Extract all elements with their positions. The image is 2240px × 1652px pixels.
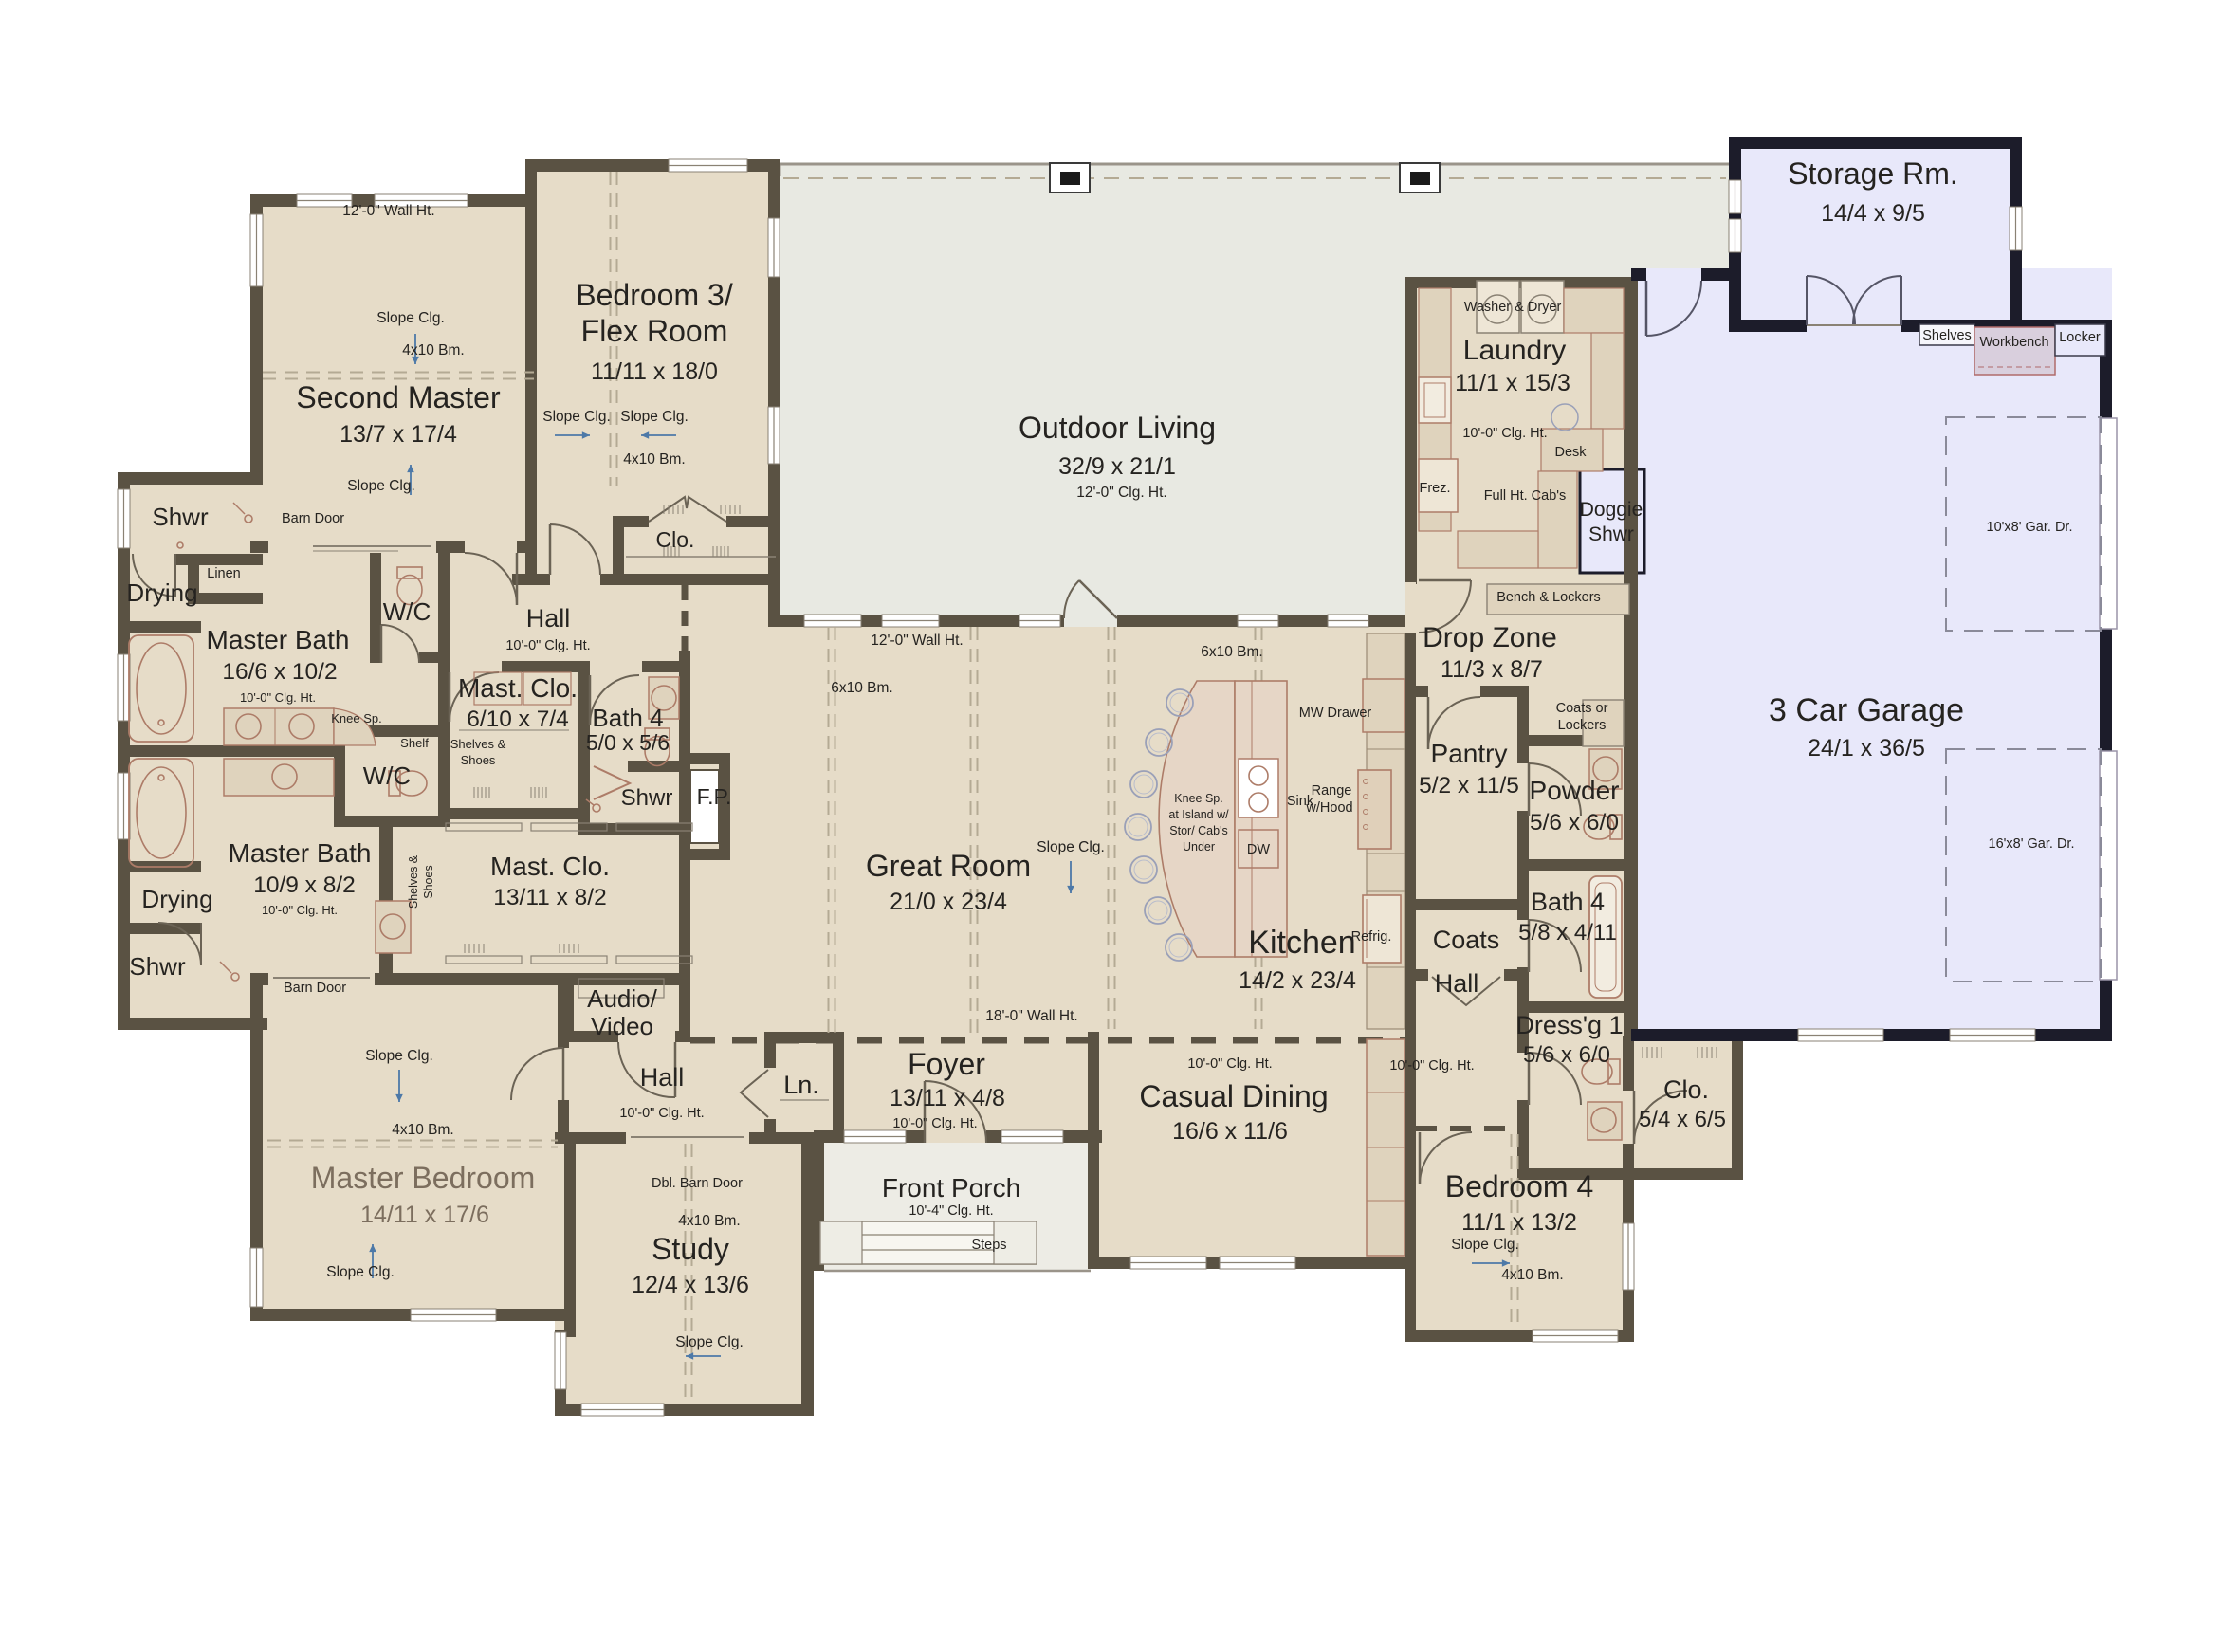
svg-text:5/0 x 5/6: 5/0 x 5/6 <box>586 730 670 755</box>
svg-text:Bedroom 3/: Bedroom 3/ <box>576 278 733 312</box>
svg-text:Mast. Clo.: Mast. Clo. <box>458 673 578 703</box>
svg-text:10'-0" Clg. Ht.: 10'-0" Clg. Ht. <box>240 690 316 705</box>
svg-text:Shelves &: Shelves & <box>407 854 420 909</box>
svg-text:Slope Clg.: Slope Clg. <box>620 409 689 425</box>
svg-text:Sink: Sink <box>1287 794 1314 809</box>
svg-text:Shwr: Shwr <box>1588 523 1634 545</box>
svg-text:Desk: Desk <box>1554 445 1587 460</box>
svg-text:Storage Rm.: Storage Rm. <box>1788 156 1958 191</box>
svg-text:21/0 x 23/4: 21/0 x 23/4 <box>890 889 1007 915</box>
svg-text:Shwr: Shwr <box>621 785 673 811</box>
svg-text:Front Porch: Front Porch <box>882 1173 1020 1202</box>
svg-text:10'-4" Clg. Ht.: 10'-4" Clg. Ht. <box>909 1203 993 1219</box>
svg-text:Dress'g 1: Dress'g 1 <box>1515 1011 1623 1039</box>
svg-text:Shwr: Shwr <box>129 952 186 981</box>
svg-text:Full Ht. Cab's: Full Ht. Cab's <box>1484 488 1567 504</box>
svg-text:Bath 4: Bath 4 <box>1531 888 1605 916</box>
svg-text:6x10 Bm.: 6x10 Bm. <box>831 680 892 696</box>
svg-text:Shoes: Shoes <box>461 753 496 767</box>
svg-text:Steps: Steps <box>971 1238 1006 1253</box>
svg-text:Flex Room: Flex Room <box>581 314 728 348</box>
svg-text:5/8 x 4/11: 5/8 x 4/11 <box>1518 920 1617 945</box>
svg-text:Shelves: Shelves <box>1922 328 1972 343</box>
svg-text:5/6 x 6/0: 5/6 x 6/0 <box>1530 810 1619 835</box>
svg-text:F.P.: F.P. <box>697 784 732 809</box>
svg-text:11/11 x 18/0: 11/11 x 18/0 <box>591 358 718 385</box>
svg-text:11/3 x 8/7: 11/3 x 8/7 <box>1441 656 1543 683</box>
svg-text:Doggie: Doggie <box>1580 499 1643 521</box>
svg-text:4x10 Bm.: 4x10 Bm. <box>678 1213 740 1229</box>
svg-text:12/4 x 13/6: 12/4 x 13/6 <box>632 1272 749 1298</box>
svg-text:Powder: Powder <box>1530 776 1620 805</box>
svg-text:10'-0" Clg. Ht.: 10'-0" Clg. Ht. <box>505 638 590 653</box>
svg-text:Video: Video <box>591 1012 653 1040</box>
svg-text:13/7 x 17/4: 13/7 x 17/4 <box>340 421 457 448</box>
svg-text:Barn Door: Barn Door <box>282 511 344 526</box>
svg-text:W/C: W/C <box>383 597 431 626</box>
svg-text:12'-0" Wall Ht.: 12'-0" Wall Ht. <box>342 203 434 219</box>
svg-text:Slope Clg.: Slope Clg. <box>326 1264 395 1280</box>
svg-text:Clo.: Clo. <box>1663 1075 1709 1104</box>
svg-text:Washer & Dryer: Washer & Dryer <box>1464 300 1562 315</box>
svg-text:Bedroom 4: Bedroom 4 <box>1445 1169 1594 1203</box>
svg-text:Knee Sp.: Knee Sp. <box>331 711 382 725</box>
svg-text:DW: DW <box>1247 842 1270 857</box>
svg-text:10/9 x 8/2: 10/9 x 8/2 <box>253 872 356 898</box>
svg-text:10'-0" Clg. Ht.: 10'-0" Clg. Ht. <box>1389 1058 1474 1074</box>
svg-text:10'-0" Clg. Ht.: 10'-0" Clg. Ht. <box>619 1106 704 1121</box>
svg-text:5/2 x 11/5: 5/2 x 11/5 <box>1419 773 1519 798</box>
svg-text:Frez.: Frez. <box>1419 481 1450 496</box>
svg-text:Master Bath: Master Bath <box>207 625 350 654</box>
svg-text:Locker: Locker <box>2059 330 2101 345</box>
svg-text:Shelf: Shelf <box>400 736 429 750</box>
svg-text:Great Room: Great Room <box>866 849 1031 883</box>
svg-text:Casual Dining: Casual Dining <box>1139 1079 1328 1113</box>
svg-text:10'-0" Clg. Ht.: 10'-0" Clg. Ht. <box>1462 426 1547 441</box>
svg-text:Drying: Drying <box>126 578 197 607</box>
svg-text:14/2 x 23/4: 14/2 x 23/4 <box>1239 967 1356 994</box>
svg-text:4x10 Bm.: 4x10 Bm. <box>392 1122 453 1138</box>
svg-text:Master Bedroom: Master Bedroom <box>311 1161 536 1195</box>
svg-text:W/C: W/C <box>363 762 412 790</box>
svg-text:3 Car Garage: 3 Car Garage <box>1769 692 1964 728</box>
svg-text:Slope Clg.: Slope Clg. <box>347 478 415 494</box>
svg-text:24/1 x 36/5: 24/1 x 36/5 <box>1808 735 1925 762</box>
svg-text:4x10 Bm.: 4x10 Bm. <box>623 451 685 468</box>
svg-text:Bath 4: Bath 4 <box>592 704 663 732</box>
svg-text:Laundry: Laundry <box>1463 335 1566 366</box>
svg-text:Hall: Hall <box>1435 969 1479 998</box>
svg-text:MW Drawer: MW Drawer <box>1299 706 1372 721</box>
svg-text:Kitchen: Kitchen <box>1248 925 1355 961</box>
svg-text:Lockers: Lockers <box>1558 718 1607 733</box>
svg-text:4x10 Bm.: 4x10 Bm. <box>402 342 464 358</box>
svg-text:Slope Clg.: Slope Clg. <box>1037 839 1105 855</box>
svg-text:Pantry: Pantry <box>1431 739 1508 768</box>
svg-text:5/6 x 6/0: 5/6 x 6/0 <box>1523 1042 1610 1068</box>
svg-text:Bench & Lockers: Bench & Lockers <box>1496 590 1601 605</box>
svg-text:6/10 x 7/4: 6/10 x 7/4 <box>467 707 569 732</box>
svg-text:Outdoor Living: Outdoor Living <box>1019 411 1216 445</box>
svg-text:Shwr: Shwr <box>152 503 209 531</box>
svg-text:Drying: Drying <box>141 885 212 913</box>
svg-text:12'-0" Clg. Ht.: 12'-0" Clg. Ht. <box>1076 485 1166 501</box>
svg-text:Dbl. Barn Door: Dbl. Barn Door <box>652 1176 743 1191</box>
svg-text:6x10 Bm.: 6x10 Bm. <box>1201 644 1262 660</box>
svg-text:13/11 x 8/2: 13/11 x 8/2 <box>493 885 606 910</box>
svg-text:Slope Clg.: Slope Clg. <box>542 409 611 425</box>
svg-text:Refrig.: Refrig. <box>1351 929 1392 945</box>
svg-text:Hall: Hall <box>526 604 571 633</box>
svg-text:16/6 x 10/2: 16/6 x 10/2 <box>222 659 337 685</box>
svg-text:Workbench: Workbench <box>1979 335 2048 350</box>
svg-text:Clo.: Clo. <box>656 527 695 552</box>
svg-text:Range: Range <box>1312 783 1352 798</box>
svg-text:10'-0" Clg. Ht.: 10'-0" Clg. Ht. <box>892 1116 977 1131</box>
svg-text:5/4 x 6/5: 5/4 x 6/5 <box>1639 1107 1726 1132</box>
svg-text:Slope Clg.: Slope Clg. <box>376 310 445 326</box>
svg-text:at Island w/: at Island w/ <box>1168 808 1229 821</box>
svg-text:Coats: Coats <box>1433 926 1500 954</box>
svg-text:Slope Clg.: Slope Clg. <box>365 1048 433 1064</box>
svg-text:Knee Sp.: Knee Sp. <box>1174 792 1222 805</box>
svg-text:Audio/: Audio/ <box>587 984 657 1013</box>
svg-text:16/6 x 11/6: 16/6 x 11/6 <box>1172 1118 1288 1145</box>
svg-text:Second Master: Second Master <box>296 380 501 414</box>
svg-text:Slope Clg.: Slope Clg. <box>675 1334 744 1350</box>
svg-text:Hall: Hall <box>640 1063 685 1092</box>
svg-text:Under: Under <box>1183 840 1215 854</box>
svg-text:12'-0" Wall Ht.: 12'-0" Wall Ht. <box>871 633 963 649</box>
svg-text:Study: Study <box>652 1232 729 1266</box>
svg-text:Coats or: Coats or <box>1556 701 1608 716</box>
svg-text:32/9 x 21/1: 32/9 x 21/1 <box>1058 453 1176 480</box>
svg-text:4x10 Bm.: 4x10 Bm. <box>1501 1267 1563 1283</box>
svg-text:10'-0" Clg. Ht.: 10'-0" Clg. Ht. <box>262 903 338 917</box>
svg-text:11/1 x 15/3: 11/1 x 15/3 <box>1455 370 1570 396</box>
svg-text:Ln.: Ln. <box>783 1071 819 1099</box>
svg-text:10'x8' Gar. Dr.: 10'x8' Gar. Dr. <box>1987 520 2073 535</box>
svg-text:Linen: Linen <box>207 566 240 581</box>
svg-text:13/11 x 4/8: 13/11 x 4/8 <box>890 1085 1005 1111</box>
svg-text:16'x8' Gar. Dr.: 16'x8' Gar. Dr. <box>1989 836 2075 852</box>
svg-text:18'-0" Wall Ht.: 18'-0" Wall Ht. <box>985 1008 1077 1024</box>
svg-text:Mast. Clo.: Mast. Clo. <box>490 852 610 881</box>
svg-text:Master Bath: Master Bath <box>229 838 372 868</box>
svg-text:10'-0" Clg. Ht.: 10'-0" Clg. Ht. <box>1187 1056 1272 1072</box>
svg-text:Foyer: Foyer <box>908 1047 985 1081</box>
svg-text:11/1 x 13/2: 11/1 x 13/2 <box>1461 1209 1577 1236</box>
svg-text:Shelves &: Shelves & <box>450 737 506 751</box>
svg-text:Shoes: Shoes <box>422 865 435 898</box>
svg-text:Barn Door: Barn Door <box>284 981 346 996</box>
svg-text:14/11 x 17/6: 14/11 x 17/6 <box>360 1202 489 1228</box>
svg-text:Stor/ Cab's: Stor/ Cab's <box>1169 824 1227 837</box>
svg-text:Slope Clg.: Slope Clg. <box>1451 1237 1519 1253</box>
svg-text:Drop Zone: Drop Zone <box>1423 622 1557 653</box>
svg-text:14/4 x 9/5: 14/4 x 9/5 <box>1821 200 1925 227</box>
